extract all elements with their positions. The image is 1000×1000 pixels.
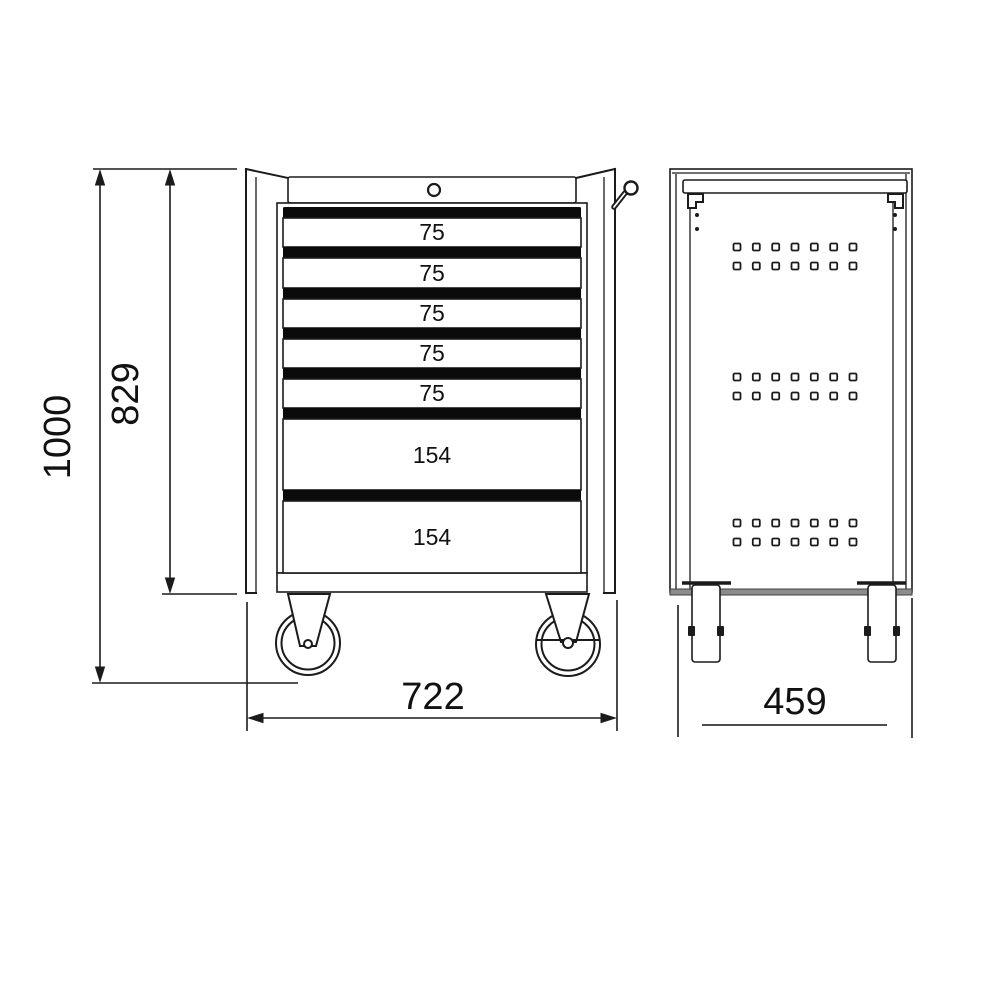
dim-arrow-left <box>247 713 264 723</box>
cabinet-height-value: 829 <box>105 362 147 425</box>
lock-icon <box>428 184 440 196</box>
caster-wheel-side <box>868 585 896 662</box>
caster-axle <box>717 626 724 636</box>
caster-axle <box>893 626 900 636</box>
drawer-row-3: 75 <box>283 288 581 328</box>
dim-arrow-up <box>165 169 175 186</box>
caster-hub <box>304 640 312 648</box>
drawer-height-label: 75 <box>419 380 445 406</box>
drawer-height-label: 75 <box>419 260 445 286</box>
cabinet-base-strip <box>277 573 587 592</box>
drawer-pull-bar <box>283 288 581 299</box>
drawer-pull-bar <box>283 247 581 258</box>
dim-arrow-right <box>601 713 618 723</box>
front-view: 75 75 75 75 75 <box>246 169 638 676</box>
front-caster-left <box>276 594 340 675</box>
drawer-height-label: 75 <box>419 300 445 326</box>
dimension-cabinet-height: 829 <box>105 169 237 594</box>
drawer-height-label: 75 <box>419 340 445 366</box>
front-top-panel <box>288 177 576 203</box>
front-caster-right <box>536 594 600 676</box>
screw-dot <box>893 227 897 231</box>
dim-arrow-up <box>95 169 105 186</box>
drawer-row-1: 75 <box>283 207 581 247</box>
drawer-stack: 75 75 75 75 75 <box>283 207 581 573</box>
drawer-pull-bar <box>283 328 581 339</box>
handle-knob-icon <box>625 182 638 195</box>
screw-dot <box>695 227 699 231</box>
caster-axle <box>864 626 871 636</box>
caster-wheel-side <box>692 585 720 662</box>
drawer-row-4: 75 <box>283 328 581 368</box>
depth-value: 459 <box>763 681 826 723</box>
dimension-overall-height: 1000 <box>37 169 298 683</box>
drawer-row-7: 154 <box>283 490 581 573</box>
overall-height-value: 1000 <box>37 395 79 480</box>
drawer-height-label: 75 <box>419 219 445 245</box>
dim-arrow-down <box>95 667 105 684</box>
caster-axle <box>688 626 695 636</box>
technical-drawing-canvas: 75 75 75 75 75 <box>0 0 1000 1000</box>
drawer-row-2: 75 <box>283 247 581 288</box>
drawer-height-label: 154 <box>413 442 452 468</box>
dim-arrow-down <box>165 578 175 595</box>
drawer-pull-bar <box>283 408 581 419</box>
drawer-pull-bar <box>283 368 581 379</box>
screw-dot <box>695 213 699 217</box>
side-handle <box>614 182 638 208</box>
drawer-pull-bar <box>283 490 581 501</box>
tool-trolley-drawing: 75 75 75 75 75 <box>0 0 1000 1000</box>
drawer-pull-bar <box>283 207 581 218</box>
overall-width-value: 722 <box>401 676 464 718</box>
side-view <box>670 169 912 662</box>
drawer-row-5: 75 <box>283 368 581 408</box>
drawer-row-6: 154 <box>283 408 581 490</box>
screw-dot <box>893 213 897 217</box>
drawer-height-label: 154 <box>413 524 452 550</box>
caster-hub <box>563 638 573 648</box>
